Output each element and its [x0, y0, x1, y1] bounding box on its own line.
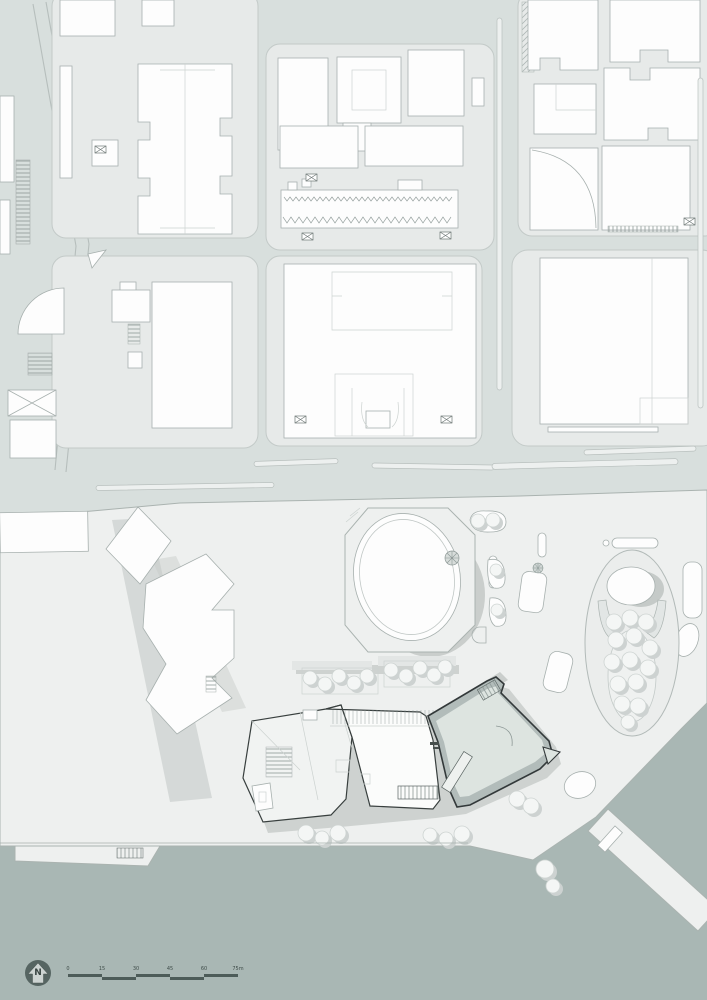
scale-tick-30: 30 [133, 966, 139, 972]
site-plan-page: N 0 15 30 45 60 75m [0, 0, 707, 1000]
scale-tick-45: 45 [167, 966, 173, 972]
scale-tick-0: 0 [66, 966, 69, 972]
quay-stairs [117, 848, 143, 858]
flower-planter [533, 563, 543, 573]
garden-lawn-oval [607, 567, 655, 605]
concert-hall-plinth [342, 503, 485, 657]
site-plan-svg: N 0 15 30 45 60 75m [0, 0, 707, 1000]
scale-tick-15: 15 [99, 966, 105, 972]
scale-tick-75m: 75m [232, 966, 243, 972]
scale-tick-60: 60 [201, 966, 207, 972]
courtyard-hall-building [284, 264, 476, 438]
north-label: N [34, 968, 42, 978]
north-arrow: N [25, 960, 51, 986]
curved-courtyard-building [530, 148, 598, 230]
block-top-middle-buildings [278, 50, 484, 240]
block-top-right-buildings [522, 0, 700, 232]
stage-fan-detail [445, 551, 459, 565]
block-mid-right-buildings [540, 258, 688, 432]
